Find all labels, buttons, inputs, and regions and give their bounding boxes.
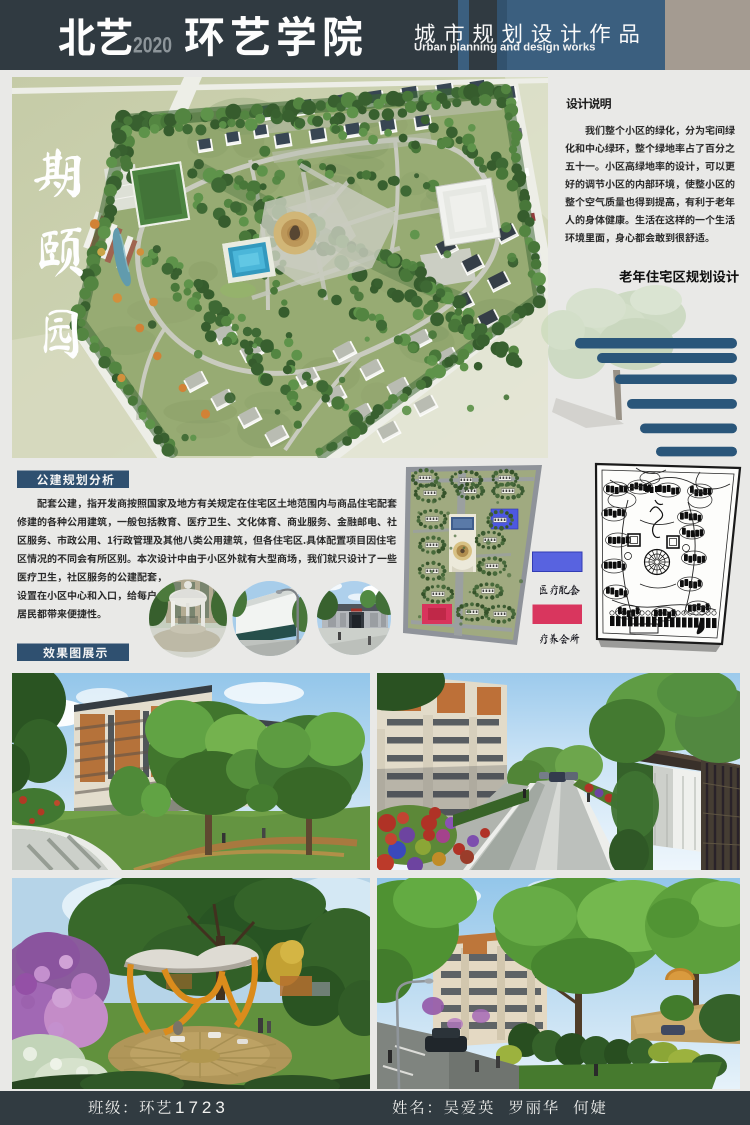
svg-text:1723: 1723 [175,1098,229,1117]
svg-text:2020: 2020 [133,33,172,58]
svg-text:Urban planning and design work: Urban planning and design works [414,42,595,54]
